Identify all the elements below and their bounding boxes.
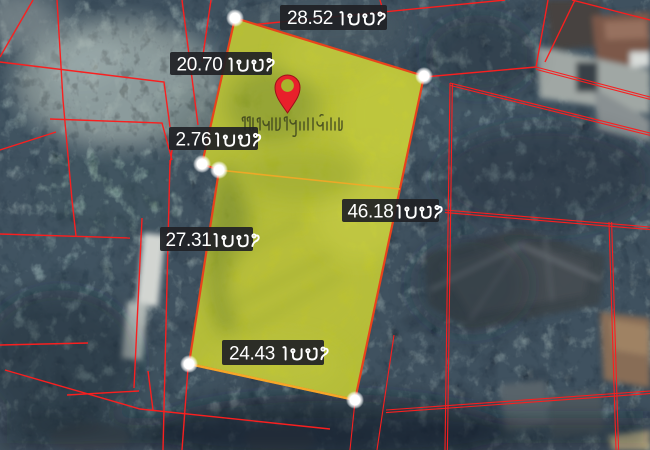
svg-text:2.76: 2.76 <box>176 129 212 150</box>
svg-text:27.31: 27.31 <box>166 230 212 251</box>
svg-text:24.43: 24.43 <box>229 343 275 364</box>
svg-text:28.52: 28.52 <box>287 8 333 29</box>
svg-text:20.70: 20.70 <box>177 54 223 75</box>
svg-text:46.18: 46.18 <box>348 201 394 222</box>
